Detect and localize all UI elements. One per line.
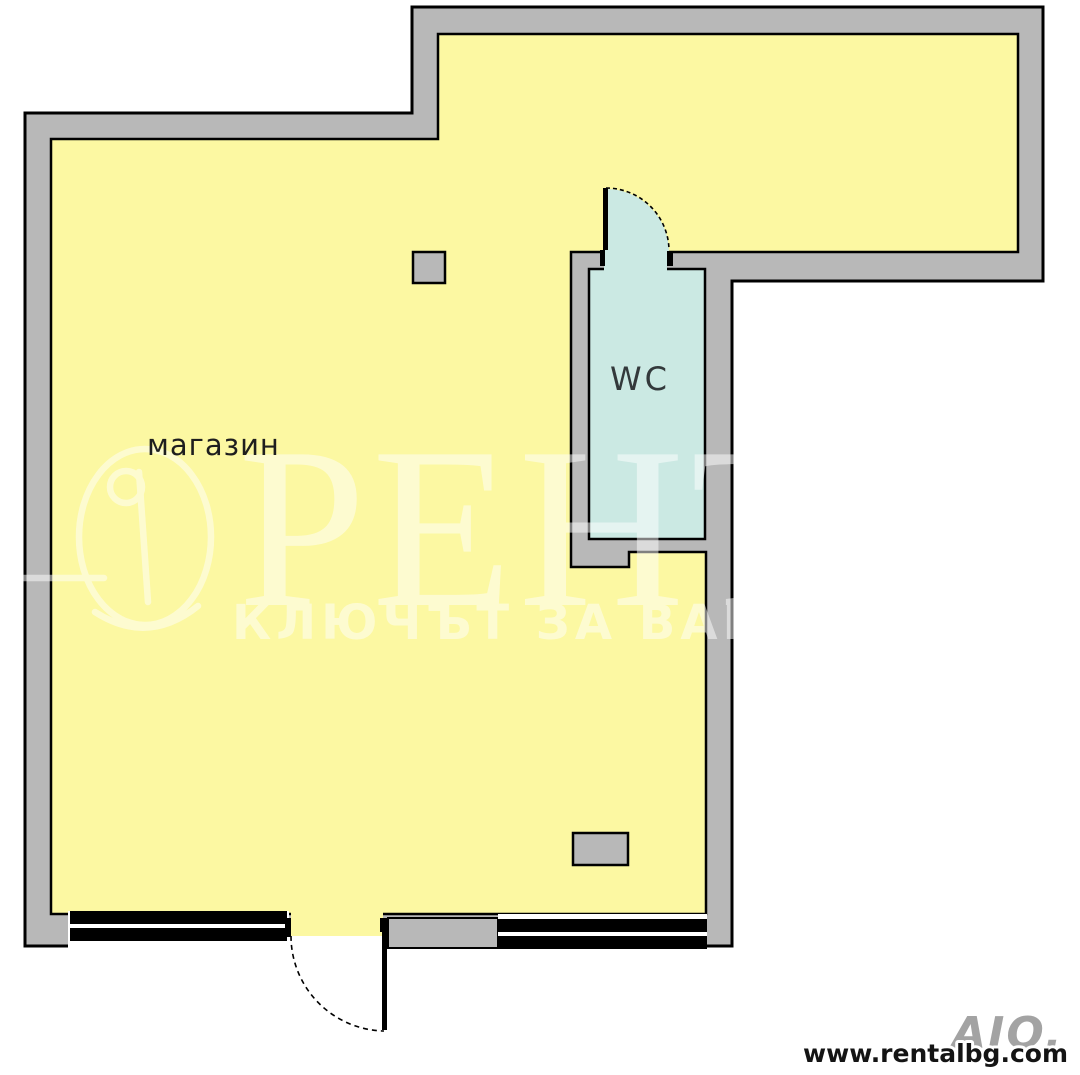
- facade-pier: [388, 918, 498, 948]
- wc-door-leaf: [603, 188, 608, 250]
- window-right-bar-top: [498, 919, 707, 932]
- website-url: www.rentalbg.com: [803, 1039, 1068, 1068]
- watermark-slogan-text: КЛЮЧЪТ ЗА ВАШ: [232, 595, 787, 651]
- shop-label: магазин: [147, 428, 280, 462]
- entry-door-jamb-left: [285, 918, 291, 937]
- entry-door-jamb-right: [380, 918, 388, 932]
- window-left: [68, 911, 289, 948]
- floor-plan-page: РЕНТ КЛЮЧЪТ ЗА ВАШ магазин WC AIO. www.r…: [0, 0, 1080, 1075]
- entry-door: [285, 912, 388, 1031]
- entry-door-opening: [291, 912, 383, 936]
- window-left-bar-bottom: [70, 928, 287, 941]
- wc-door-jamb-right: [667, 252, 673, 266]
- window-right: [498, 914, 707, 951]
- column-square: [413, 252, 445, 283]
- column-rect: [573, 833, 628, 865]
- entry-door-arc: [291, 936, 384, 1031]
- window-left-bar-top: [70, 911, 287, 924]
- wc-door-opening: [604, 248, 667, 272]
- wc-label: WC: [610, 360, 670, 398]
- floor-plan-canvas: РЕНТ КЛЮЧЪТ ЗА ВАШ магазин WC AIO. www.r…: [0, 0, 1080, 1075]
- entry-door-leaf: [382, 932, 387, 1030]
- window-right-bar-bottom: [498, 936, 707, 949]
- wc-door-jamb-left: [600, 250, 605, 266]
